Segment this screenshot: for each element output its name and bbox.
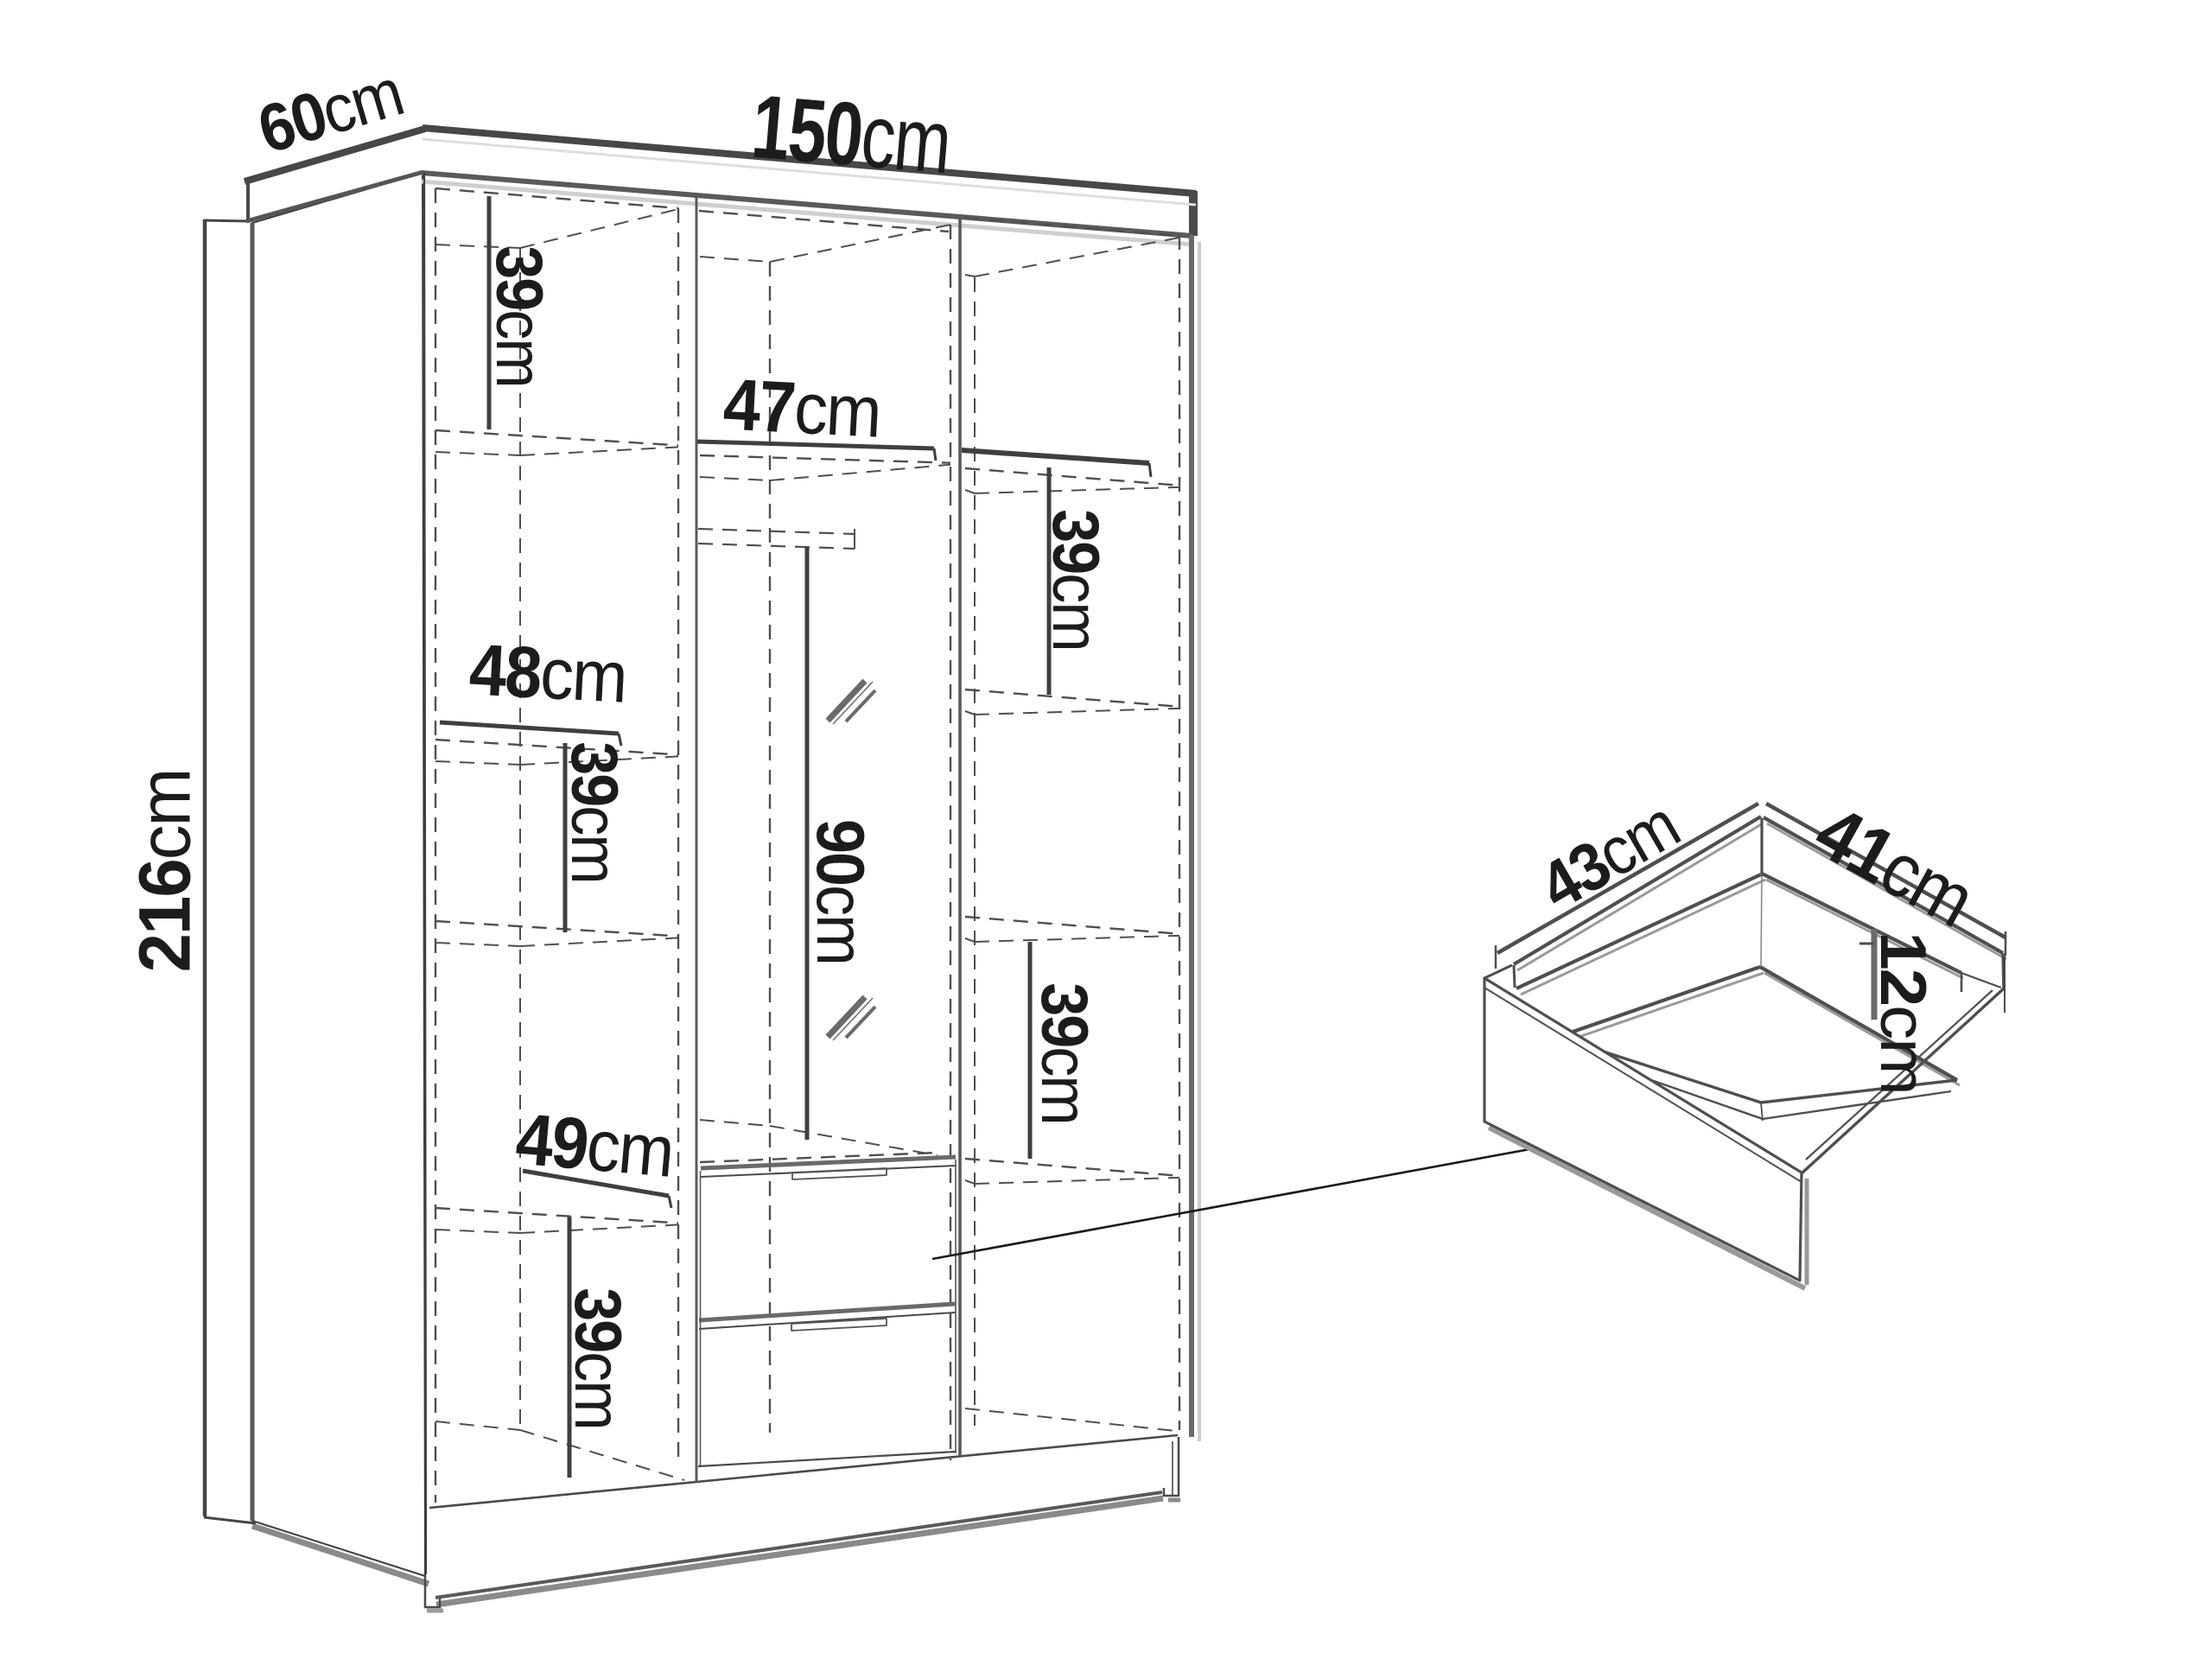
svg-text:39cm: 39cm <box>1039 509 1112 651</box>
svg-text:39cm: 39cm <box>558 741 631 883</box>
svg-text:216cm: 216cm <box>124 770 205 973</box>
svg-text:90cm: 90cm <box>803 819 878 964</box>
svg-text:49cm: 49cm <box>512 1098 676 1192</box>
svg-text:39cm: 39cm <box>483 245 556 387</box>
svg-text:47cm: 47cm <box>721 364 882 453</box>
svg-text:12cm: 12cm <box>1866 931 1938 1094</box>
svg-text:39cm: 39cm <box>562 1287 634 1429</box>
svg-text:48cm: 48cm <box>467 629 628 718</box>
svg-text:150cm: 150cm <box>748 75 955 193</box>
svg-text:39cm: 39cm <box>1028 982 1101 1124</box>
